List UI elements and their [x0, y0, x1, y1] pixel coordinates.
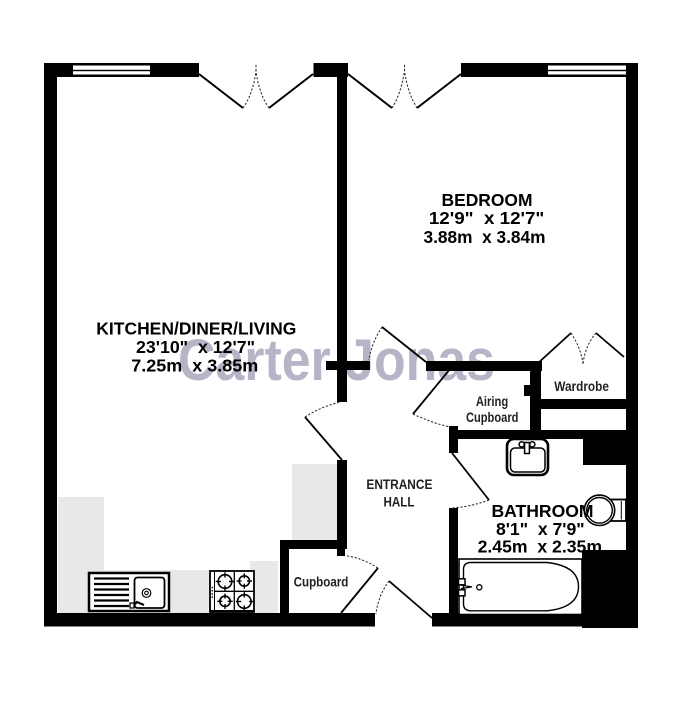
svg-text:ENTRANCE: ENTRANCE	[366, 477, 432, 492]
svg-text:12'9" x 12'7": 12'9" x 12'7"	[429, 208, 545, 228]
svg-text:KITCHEN/DINER/LIVING: KITCHEN/DINER/LIVING	[96, 319, 296, 339]
svg-text:23'10" x 12'7": 23'10" x 12'7"	[136, 337, 255, 357]
svg-text:2.45m x 2.35m: 2.45m x 2.35m	[478, 536, 602, 556]
svg-text:HALL: HALL	[384, 494, 415, 509]
svg-text:BEDROOM: BEDROOM	[442, 190, 533, 210]
svg-text:3.88m x 3.84m: 3.88m x 3.84m	[424, 227, 546, 247]
svg-text:7.25m x 3.85m: 7.25m x 3.85m	[131, 356, 258, 376]
svg-text:Airing: Airing	[476, 394, 508, 409]
svg-text:Wardrobe: Wardrobe	[554, 379, 609, 394]
svg-text:Cupboard: Cupboard	[466, 410, 519, 425]
svg-text:Cupboard: Cupboard	[294, 574, 349, 589]
